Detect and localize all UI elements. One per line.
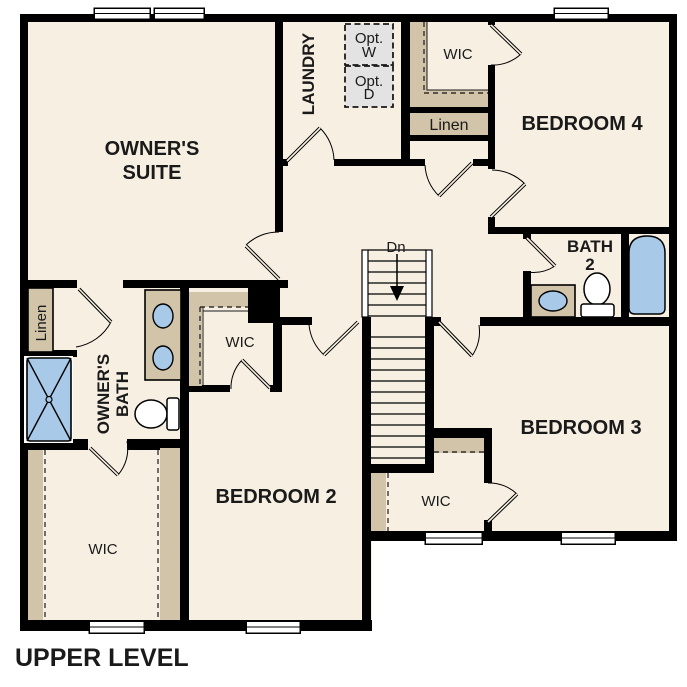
svg-text:2: 2	[585, 255, 594, 274]
svg-text:SUITE: SUITE	[123, 162, 182, 184]
svg-text:UPPER LEVEL: UPPER LEVEL	[15, 644, 189, 672]
svg-text:BATH: BATH	[113, 371, 132, 417]
svg-text:OWNER'S: OWNER'S	[94, 354, 113, 435]
svg-text:BEDROOM 2: BEDROOM 2	[215, 486, 336, 508]
svg-text:WIC: WIC	[443, 46, 472, 63]
svg-text:W: W	[362, 44, 377, 61]
svg-text:BEDROOM 4: BEDROOM 4	[521, 113, 643, 135]
svg-text:Dn: Dn	[386, 239, 405, 256]
svg-text:OWNER'S: OWNER'S	[105, 138, 200, 160]
svg-text:WIC: WIC	[421, 493, 450, 510]
svg-text:Linen: Linen	[429, 117, 468, 134]
svg-text:BATH: BATH	[567, 237, 613, 256]
svg-text:D: D	[364, 86, 375, 103]
svg-text:Linen: Linen	[33, 305, 50, 342]
svg-text:BEDROOM 3: BEDROOM 3	[520, 417, 641, 439]
svg-text:WIC: WIC	[225, 334, 254, 351]
svg-text:LAUNDRY: LAUNDRY	[299, 32, 318, 115]
svg-text:WIC: WIC	[88, 541, 117, 558]
